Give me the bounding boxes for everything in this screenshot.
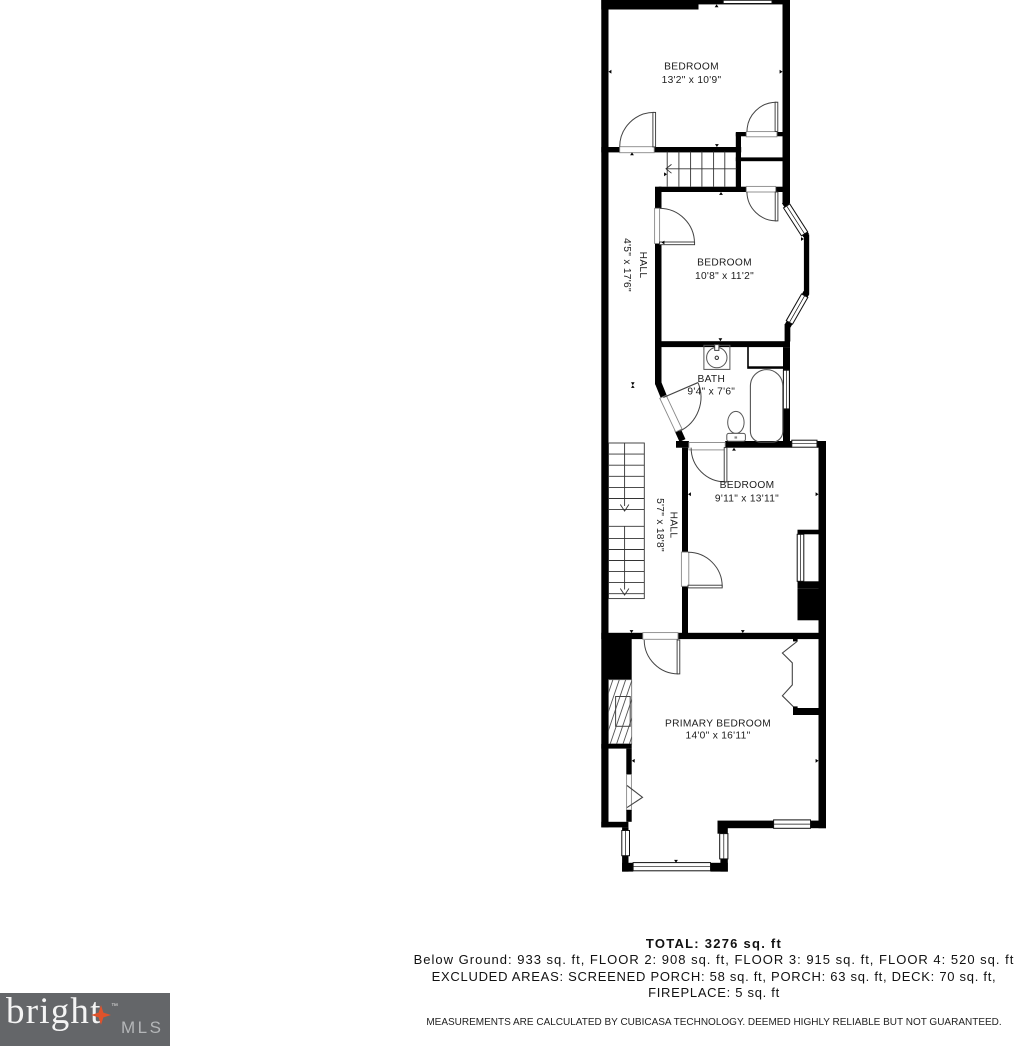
svg-text:9'11" x 13'11": 9'11" x 13'11" [715,494,779,505]
svg-text:BATH: BATH [697,374,725,385]
svg-text:HALL: HALL [668,512,679,539]
svg-text:9'4" x 7'6": 9'4" x 7'6" [687,387,735,398]
svg-text:10'8" x 11'2": 10'8" x 11'2" [695,271,754,282]
svg-text:HALL: HALL [637,252,648,279]
svg-text:14'0" x 16'11": 14'0" x 16'11" [686,730,751,741]
svg-text:BEDROOM: BEDROOM [720,480,775,491]
svg-text:BEDROOM: BEDROOM [664,62,719,73]
svg-text:BEDROOM: BEDROOM [697,258,752,269]
svg-text:PRIMARY BEDROOM: PRIMARY BEDROOM [665,718,771,729]
svg-text:4'5" x 17'6": 4'5" x 17'6" [621,238,632,292]
svg-text:13'2" x 10'9": 13'2" x 10'9" [662,75,722,86]
svg-text:5'7" x 18'8": 5'7" x 18'8" [654,498,665,552]
